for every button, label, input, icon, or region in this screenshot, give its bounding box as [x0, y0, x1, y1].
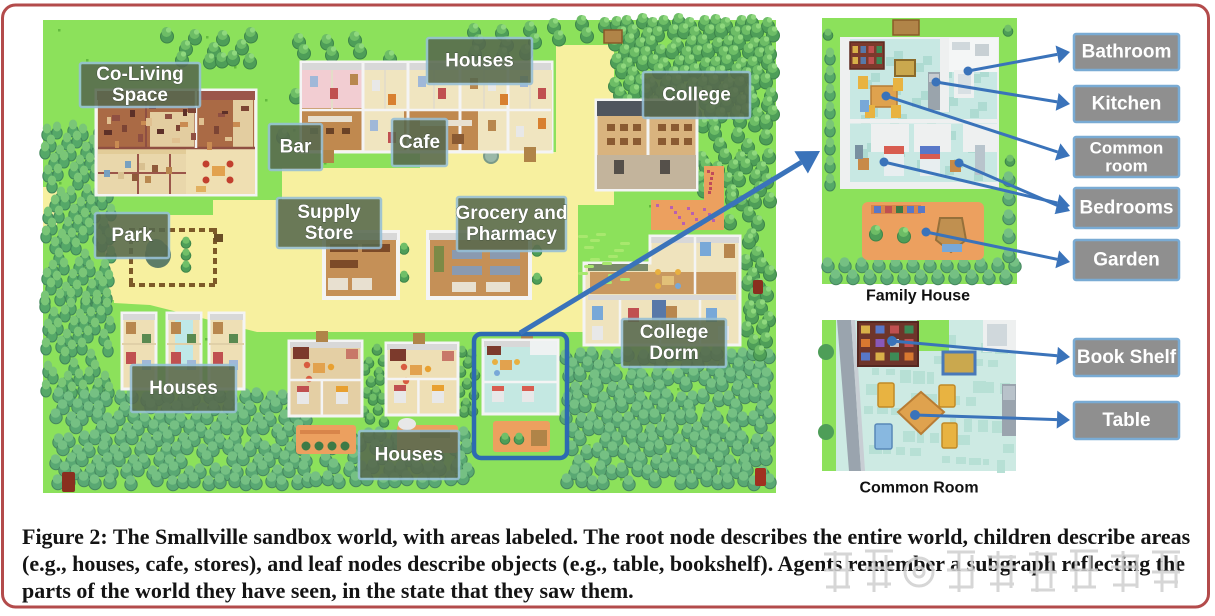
svg-text:room: room: [1105, 157, 1148, 176]
svg-text:Cafe: Cafe: [399, 132, 440, 153]
svg-text:Garden: Garden: [1093, 250, 1160, 271]
svg-text:parts of the world they have s: parts of the world they have seen, in th…: [22, 578, 634, 603]
svg-text:Book Shelf: Book Shelf: [1077, 347, 1177, 368]
svg-text:Houses: Houses: [445, 51, 514, 72]
svg-text:Bathroom: Bathroom: [1082, 42, 1172, 63]
svg-text:Store: Store: [305, 223, 354, 244]
svg-text:Common: Common: [1090, 139, 1164, 158]
svg-text:Co-Living: Co-Living: [96, 64, 184, 85]
svg-text:Family House: Family House: [866, 288, 970, 305]
svg-text:Pharmacy: Pharmacy: [466, 224, 557, 245]
svg-text:Bedrooms: Bedrooms: [1080, 198, 1174, 219]
svg-text:Dorm: Dorm: [649, 343, 699, 364]
svg-text:Table: Table: [1102, 410, 1150, 431]
svg-text:Common Room: Common Room: [859, 480, 978, 497]
svg-text:Park: Park: [111, 225, 153, 246]
svg-text:Figure 2: The Smallville sandb: Figure 2: The Smallville sandbox world, …: [22, 524, 1191, 549]
svg-text:Space: Space: [112, 85, 168, 106]
svg-text:Supply: Supply: [297, 202, 361, 223]
svg-text:Kitchen: Kitchen: [1092, 94, 1162, 115]
svg-text:College: College: [640, 322, 709, 343]
svg-text:College: College: [662, 85, 731, 106]
svg-text:Houses: Houses: [375, 445, 444, 466]
svg-text:Houses: Houses: [149, 378, 218, 399]
svg-text:Bar: Bar: [280, 137, 312, 158]
svg-text:Grocery and: Grocery and: [456, 203, 568, 224]
